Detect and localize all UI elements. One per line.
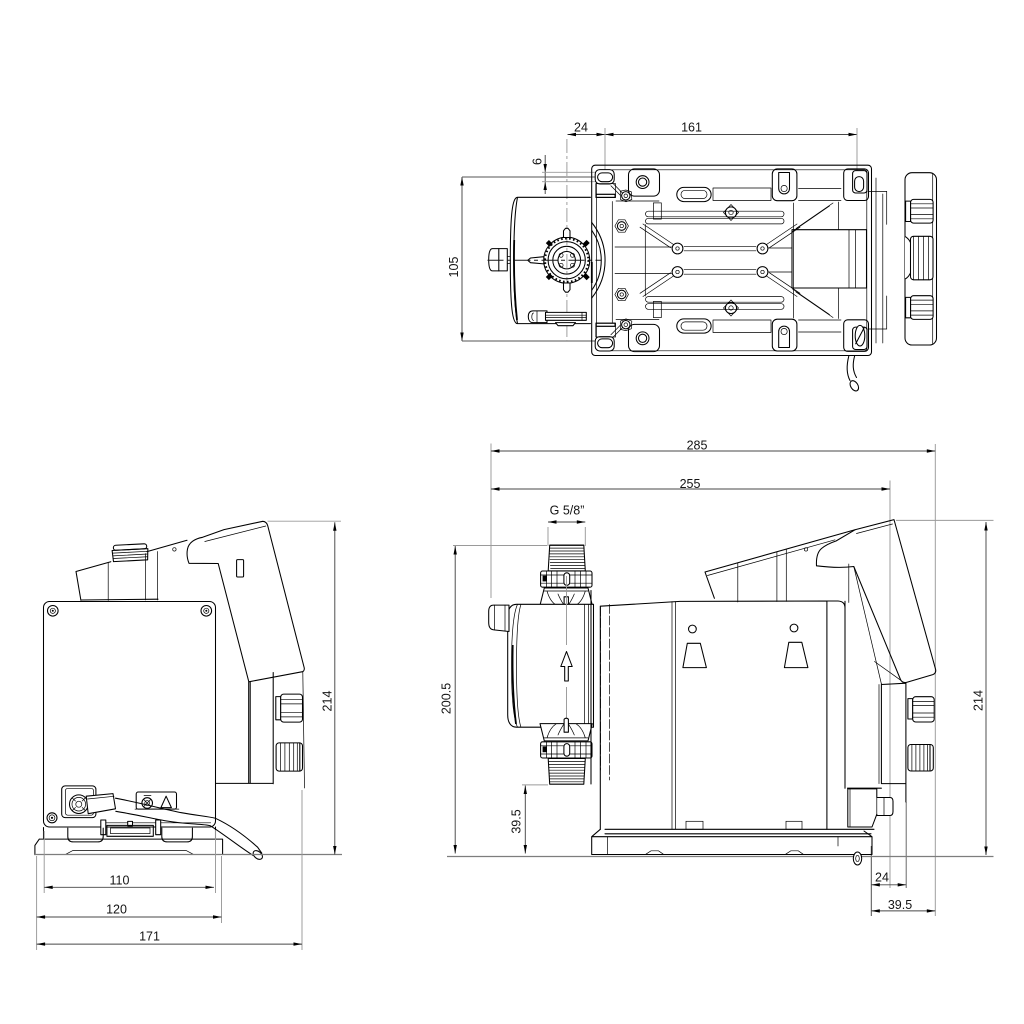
svg-text:24: 24	[875, 870, 889, 884]
svg-text:39.5: 39.5	[510, 809, 524, 833]
svg-text:120: 120	[106, 903, 127, 917]
svg-text:161: 161	[681, 121, 702, 135]
svg-text:39.5: 39.5	[888, 898, 912, 912]
svg-text:200.5: 200.5	[440, 683, 454, 714]
svg-text:105: 105	[447, 257, 461, 278]
svg-text:6: 6	[531, 158, 545, 165]
svg-text:214: 214	[972, 690, 986, 711]
svg-text:255: 255	[680, 477, 701, 491]
svg-text:214: 214	[321, 691, 335, 712]
svg-text:171: 171	[139, 929, 160, 943]
svg-text:110: 110	[110, 873, 130, 887]
svg-text:24: 24	[574, 121, 588, 135]
svg-text:G 5/8”: G 5/8”	[550, 504, 585, 518]
svg-text:285: 285	[687, 439, 708, 453]
